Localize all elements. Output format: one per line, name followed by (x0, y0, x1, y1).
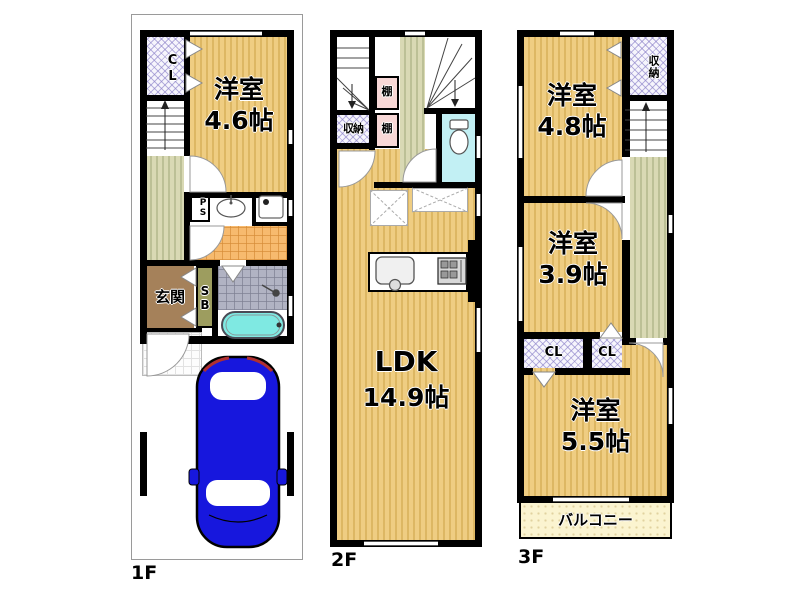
hallway-1f (146, 156, 184, 260)
wall (436, 114, 442, 184)
garage-wall-left (140, 432, 147, 496)
storage-3f-label: 収納 (632, 42, 660, 92)
shelf-2-label: 棚 (375, 122, 399, 136)
room-4-6-name: 洋室 (214, 75, 264, 104)
window (560, 31, 594, 36)
garage-wall-right (287, 432, 294, 496)
hallway-3f (630, 157, 667, 338)
bathroom-1f (218, 266, 287, 310)
window (476, 136, 481, 158)
balcony-label: バルコニー (519, 511, 672, 530)
stairs-area-3f (624, 101, 667, 157)
room-5-5-label: 洋室 5.5帖 (524, 395, 667, 458)
wall (184, 192, 190, 266)
wall (212, 266, 218, 344)
wall (592, 332, 600, 339)
floor-label-3f: 3F (518, 546, 562, 568)
ldk-label: LDK 14.9帖 (337, 344, 475, 414)
toilet-room-2f (442, 114, 475, 182)
wall (337, 110, 369, 115)
ldk-name: LDK (375, 345, 438, 378)
room-5-5-name: 洋室 (570, 396, 620, 425)
ldk-size: 14.9帖 (363, 383, 450, 412)
kitchen-counter (368, 252, 468, 292)
washroom-1f (190, 226, 287, 260)
appliance-space-2 (412, 188, 468, 212)
window (288, 296, 293, 316)
appliance-space-1 (370, 190, 408, 226)
wall (663, 338, 669, 345)
wall (622, 95, 674, 101)
window (476, 308, 481, 352)
wall (252, 192, 256, 226)
wall (517, 368, 533, 375)
room-4-6-label: 洋室 4.6帖 (190, 74, 288, 137)
hallway-2f (400, 37, 425, 182)
room-4-8-name: 洋室 (547, 81, 597, 110)
room-4-6-size: 4.6帖 (204, 106, 273, 135)
pipe-space-label: PS (192, 194, 208, 221)
wall (583, 368, 630, 375)
wall (517, 196, 625, 203)
bath-door-gap (220, 260, 246, 266)
shelf-1-label: 棚 (375, 85, 399, 99)
wall (146, 95, 184, 101)
stairs-area-2f-right (425, 37, 475, 108)
wall (337, 143, 375, 149)
wall (330, 30, 337, 547)
room-3-9-size: 3.9帖 (538, 260, 607, 289)
room-3-9-name: 洋室 (548, 229, 598, 258)
window (288, 130, 293, 144)
shoe-box-label: SB (198, 278, 212, 318)
room-4-8-size: 4.8帖 (537, 112, 606, 141)
closet-cl-1f-label: CL (152, 46, 180, 92)
closet-cl-left-label: CL (524, 345, 583, 361)
window (405, 31, 425, 36)
wall (517, 332, 583, 339)
storage-2f-label: 収納 (336, 122, 370, 136)
room-4-8-label: 洋室 4.8帖 (524, 80, 620, 143)
window (288, 200, 293, 216)
wall (468, 240, 475, 302)
floor-label-1f: 1F (131, 562, 175, 584)
wall (555, 368, 583, 375)
wall (517, 30, 674, 37)
wall (622, 332, 630, 339)
wall (424, 108, 482, 114)
wall (252, 222, 294, 226)
window (364, 541, 438, 546)
room-3-9-label: 洋室 3.9帖 (524, 228, 622, 291)
window (190, 31, 262, 36)
wall (374, 182, 482, 188)
floor-plan: CL 洋室 4.6帖 PS 玄関 SB 1F 棚 棚 収納 LDK 14.9帖 … (0, 0, 800, 600)
window (518, 247, 523, 321)
wall (140, 328, 202, 332)
wall (622, 338, 636, 345)
entrance-label: 玄関 (146, 288, 194, 307)
floor-label-2f: 2F (331, 549, 375, 571)
closet-cl-right-label: CL (592, 345, 622, 361)
window (476, 194, 481, 216)
window (553, 497, 629, 502)
window (668, 215, 673, 233)
stairs-area-1f (146, 101, 184, 156)
bathroom-lower-1f (218, 310, 287, 338)
stairs-area-2f-left (337, 37, 369, 110)
window (518, 86, 523, 158)
wall (622, 240, 630, 332)
window (668, 388, 673, 424)
room-5-5-size: 5.5帖 (561, 427, 630, 456)
